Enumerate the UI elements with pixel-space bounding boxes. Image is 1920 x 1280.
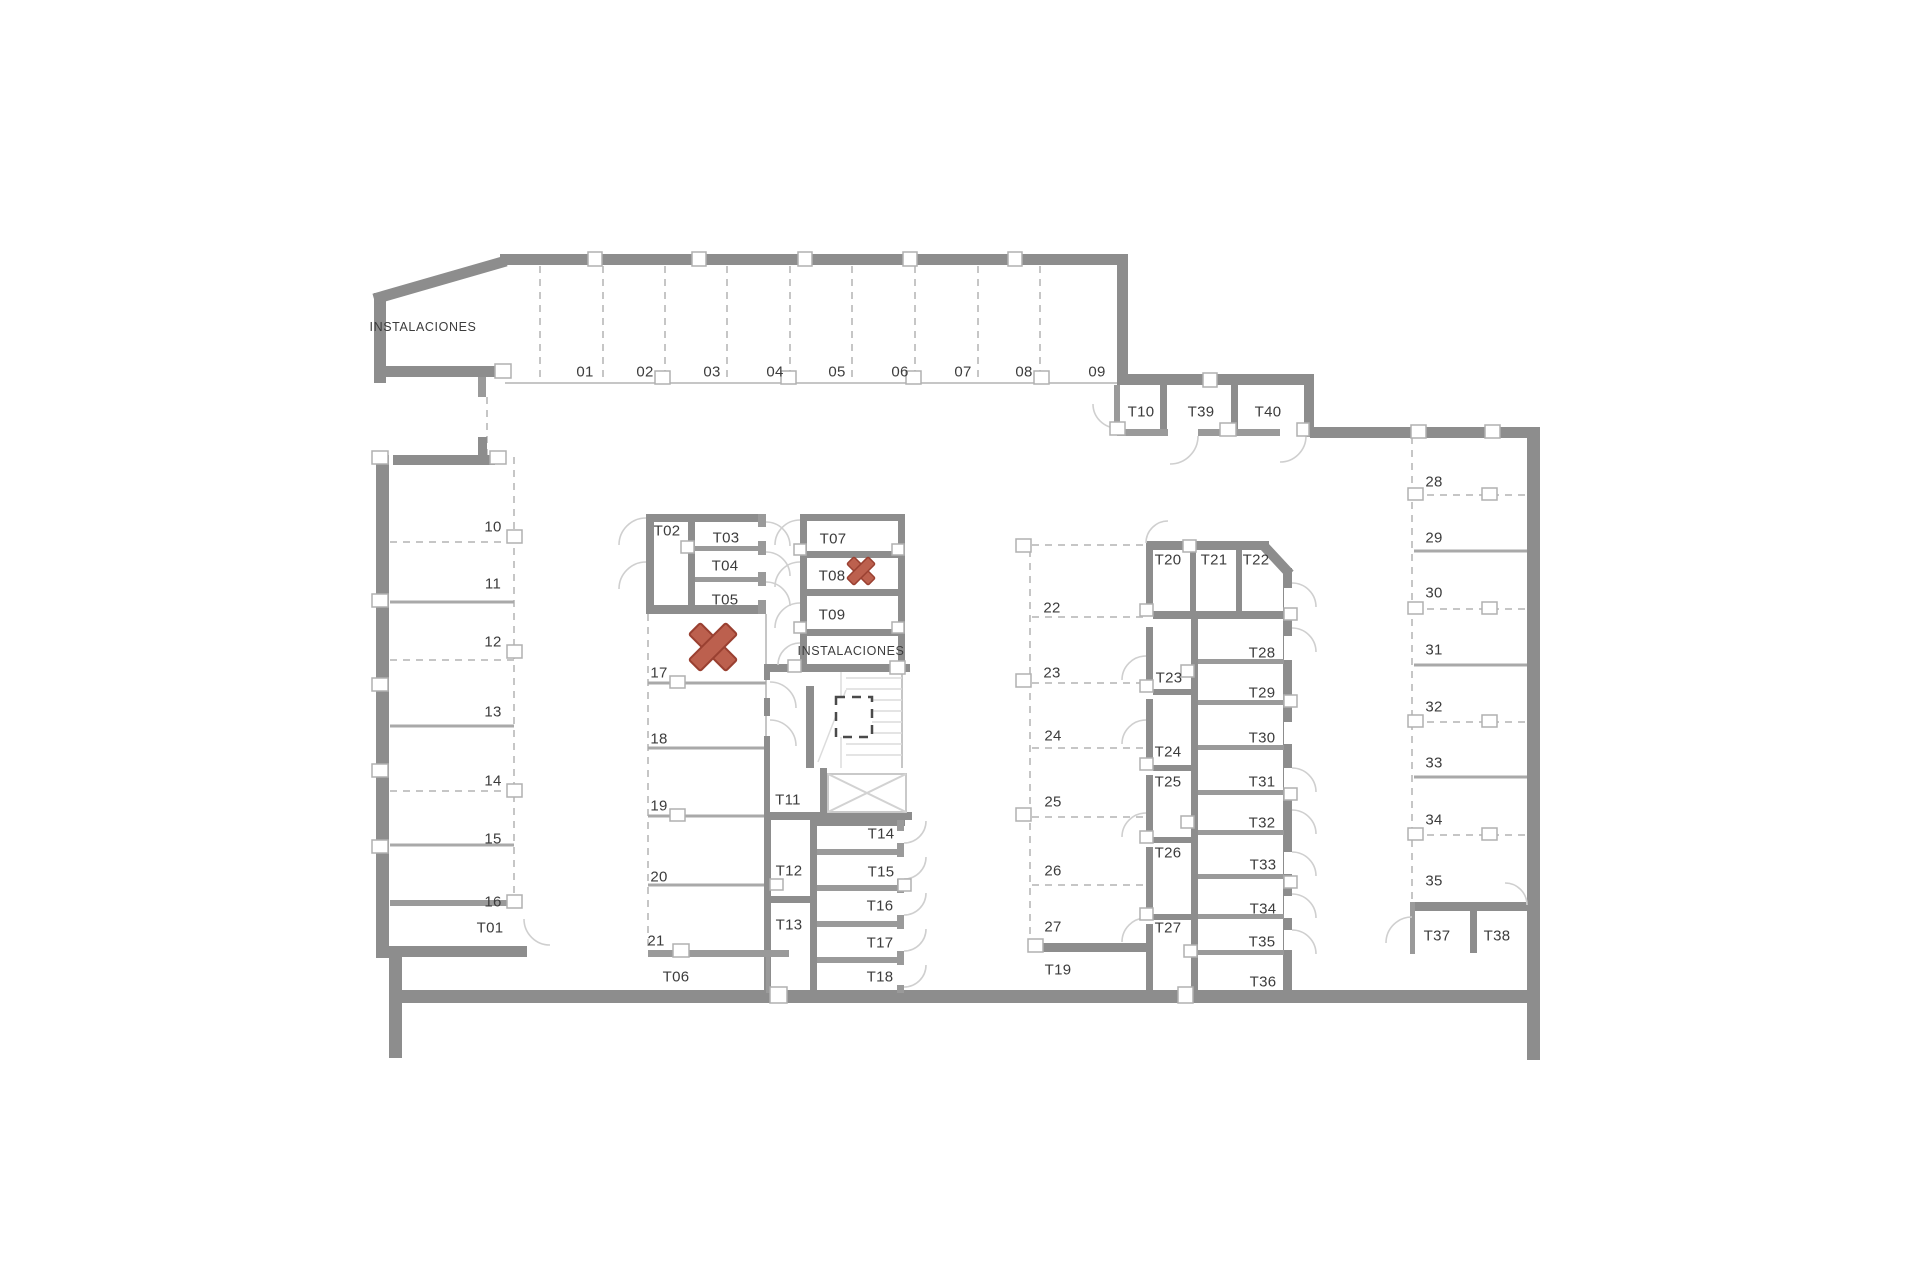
storage-t12-label: T12 — [776, 863, 803, 880]
space-30-label: 30 — [1425, 585, 1442, 602]
space-34-label: 34 — [1425, 812, 1442, 829]
space-04-label: 04 — [766, 364, 783, 381]
storage-t36-label: T36 — [1250, 974, 1277, 991]
space-24-label: 24 — [1044, 728, 1061, 745]
space-07-label: 07 — [954, 364, 971, 381]
storage-t31-label: T31 — [1249, 774, 1276, 791]
storage-t09-label: T09 — [819, 607, 846, 624]
space-35-label: 35 — [1425, 873, 1442, 890]
space-08-label: 08 — [1015, 364, 1032, 381]
storage-t08-label: T08 — [819, 568, 846, 585]
space-14-label: 14 — [484, 773, 501, 790]
space-33-label: 33 — [1425, 755, 1442, 772]
space-16-label: 16 — [484, 894, 501, 911]
storage-t16-label: T16 — [867, 898, 894, 915]
space-02-label: 02 — [636, 364, 653, 381]
storage-t29-label: T29 — [1249, 685, 1276, 702]
column-squares — [372, 252, 1500, 1003]
storage-t38-label: T38 — [1484, 928, 1511, 945]
space-15-label: 15 — [484, 831, 501, 848]
instalaciones-top-label: INSTALACIONES — [370, 320, 477, 334]
storage-t23-label: T23 — [1156, 670, 1183, 687]
storage-t17-label: T17 — [867, 935, 894, 952]
shaft-cross — [828, 774, 906, 812]
storage-t25-label: T25 — [1155, 774, 1182, 791]
space-01-label: 01 — [576, 364, 593, 381]
storage-t34-label: T34 — [1250, 901, 1277, 918]
storage-t22-label: T22 — [1243, 552, 1270, 569]
instalaciones-mid-label: INSTALACIONES — [798, 644, 905, 658]
marker-x-large — [689, 623, 737, 671]
door-arcs — [524, 404, 1527, 987]
space-19-label: 19 — [650, 798, 667, 815]
storage-t07-label: T07 — [820, 531, 847, 548]
storage-t04-label: T04 — [712, 558, 739, 575]
space-10-label: 10 — [484, 519, 501, 536]
elevator-dashed-outline — [836, 697, 872, 737]
space-21-label: 21 — [647, 933, 664, 950]
storage-t40-label: T40 — [1255, 404, 1282, 421]
storage-t27-label: T27 — [1155, 920, 1182, 937]
storage-t28-label: T28 — [1249, 645, 1276, 662]
storage-t24-label: T24 — [1155, 744, 1182, 761]
storage-t35-label: T35 — [1249, 934, 1276, 951]
storage-t39-label: T39 — [1188, 404, 1215, 421]
storage-t01-label: T01 — [477, 920, 504, 937]
storage-t05-label: T05 — [712, 592, 739, 609]
storage-t21-label: T21 — [1201, 552, 1228, 569]
space-26-label: 26 — [1044, 863, 1061, 880]
space-09-label: 09 — [1088, 364, 1105, 381]
storage-t15-label: T15 — [868, 864, 895, 881]
storage-t37-label: T37 — [1424, 928, 1451, 945]
space-20-label: 20 — [650, 869, 667, 886]
space-23-label: 23 — [1043, 665, 1060, 682]
storage-t26-label: T26 — [1155, 845, 1182, 862]
storage-t18-label: T18 — [867, 969, 894, 986]
space-11-label: 11 — [485, 576, 501, 593]
space-22-label: 22 — [1043, 600, 1060, 617]
storage-t33-label: T33 — [1250, 857, 1277, 874]
floor-plan-drawing — [0, 0, 1920, 1280]
space-13-label: 13 — [484, 704, 501, 721]
space-05-label: 05 — [828, 364, 845, 381]
storage-t02-label: T02 — [654, 523, 681, 540]
storage-t32-label: T32 — [1249, 815, 1276, 832]
space-31-label: 31 — [1425, 642, 1442, 659]
storage-t03-label: T03 — [713, 530, 740, 547]
storage-t11-label: T11 — [775, 792, 801, 809]
floor-plan-canvas: INSTALACIONES INSTALACIONES 01 02 03 04 … — [0, 0, 1920, 1280]
space-06-label: 06 — [891, 364, 908, 381]
storage-t14-label: T14 — [868, 826, 895, 843]
storage-t19-label: T19 — [1045, 962, 1072, 979]
thin-solid-separators — [390, 551, 1527, 885]
marker-x-small — [847, 557, 875, 585]
space-25-label: 25 — [1044, 794, 1061, 811]
storage-t13-label: T13 — [776, 917, 803, 934]
space-28-label: 28 — [1425, 474, 1442, 491]
space-32-label: 32 — [1425, 699, 1442, 716]
space-29-label: 29 — [1425, 530, 1442, 547]
storage-t06-label: T06 — [663, 969, 690, 986]
storage-t20-label: T20 — [1155, 552, 1182, 569]
space-03-label: 03 — [703, 364, 720, 381]
space-12-label: 12 — [484, 634, 501, 651]
storage-t30-label: T30 — [1249, 730, 1276, 747]
storage-t10-label: T10 — [1128, 404, 1155, 421]
space-27-label: 27 — [1044, 919, 1061, 936]
space-17-label: 17 — [650, 665, 667, 682]
space-18-label: 18 — [650, 731, 667, 748]
